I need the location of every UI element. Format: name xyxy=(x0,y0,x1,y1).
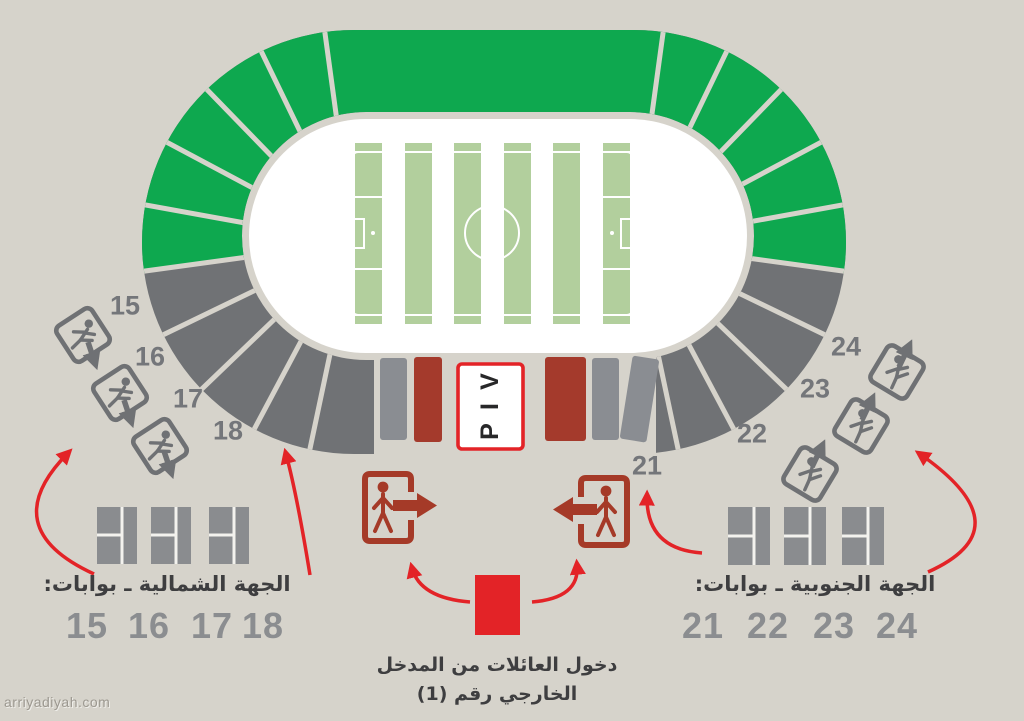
section-number-23: 23 xyxy=(800,374,830,405)
center-spot xyxy=(490,231,495,236)
vip-letter: I xyxy=(478,403,503,410)
section-number-16: 16 xyxy=(135,342,165,373)
gate-number-16: 16 xyxy=(128,605,170,647)
exit-running-man-icon-17 xyxy=(131,417,189,475)
arrow-left-icon xyxy=(553,497,597,522)
section-number-21: 21 xyxy=(632,451,662,482)
north-side-label: الجهة الشمالية ـ بوابات: xyxy=(43,572,290,596)
stadium-gate-map: V I P 15 16 17 18 21 22 23 24 الجهة الشم… xyxy=(0,0,1024,721)
exit-running-man-icon-22 xyxy=(781,445,839,503)
door-entry-arrow-left-icon xyxy=(553,478,627,545)
family-entrance-square xyxy=(475,575,520,635)
exit-running-man-icon-16 xyxy=(91,364,149,422)
red-curved-arrow-north-right xyxy=(286,454,310,575)
gate-number-21: 21 xyxy=(682,605,724,647)
vip-letter: V xyxy=(478,373,503,390)
red-curved-arrow-entrance-left xyxy=(412,568,470,602)
arrow-down-icon xyxy=(124,400,131,421)
family-entrance-caption-line2: الخارجي رقم (1) xyxy=(417,683,577,705)
gate-blocks xyxy=(97,507,884,565)
vip-letter: P xyxy=(478,423,503,440)
red-curved-arrow-entrance-right xyxy=(532,565,577,602)
arrow-right-icon xyxy=(393,493,437,518)
family-entry-doors xyxy=(365,474,627,545)
south-side-label: الجهة الجنوبية ـ بوابات: xyxy=(695,572,936,596)
gate-number-24: 24 xyxy=(876,605,918,647)
stand-bar-red-right xyxy=(545,357,586,441)
door-entry-arrow-right-icon xyxy=(365,474,437,541)
gate-number-18: 18 xyxy=(242,605,284,647)
stand-bar-gray-right xyxy=(592,358,619,440)
red-curved-arrow-south-left xyxy=(647,496,702,553)
section-number-22: 22 xyxy=(737,419,767,450)
watermark: arriyadiyah.com xyxy=(4,694,110,710)
exit-running-man-icon-15 xyxy=(54,306,112,364)
gate-number-15: 15 xyxy=(66,605,108,647)
exit-running-man-icon-24 xyxy=(868,343,926,401)
south-gate-blocks xyxy=(728,507,884,565)
exit-running-man-icon-23 xyxy=(832,397,890,455)
family-entrance-caption-line1: دخول العائلات من المدخل xyxy=(377,654,618,676)
gate-number-17: 17 xyxy=(191,605,233,647)
section-number-17: 17 xyxy=(173,384,203,415)
infield-track xyxy=(249,119,747,353)
section-number-18: 18 xyxy=(213,416,243,447)
arrow-down-icon xyxy=(88,342,95,363)
vip-label: V I P xyxy=(458,364,523,449)
red-curved-arrow-north-left xyxy=(37,453,94,574)
north-gate-blocks xyxy=(97,507,249,564)
red-curved-arrow-south-right xyxy=(920,454,975,572)
penalty-spot-left xyxy=(371,231,375,235)
gate-number-23: 23 xyxy=(813,605,855,647)
section-number-15: 15 xyxy=(110,291,140,322)
penalty-spot-right xyxy=(610,231,614,235)
gate-number-22: 22 xyxy=(747,605,789,647)
section-number-24: 24 xyxy=(831,332,861,363)
stand-bar-gray-left xyxy=(380,358,407,440)
stand-bar-red-left xyxy=(414,357,442,442)
